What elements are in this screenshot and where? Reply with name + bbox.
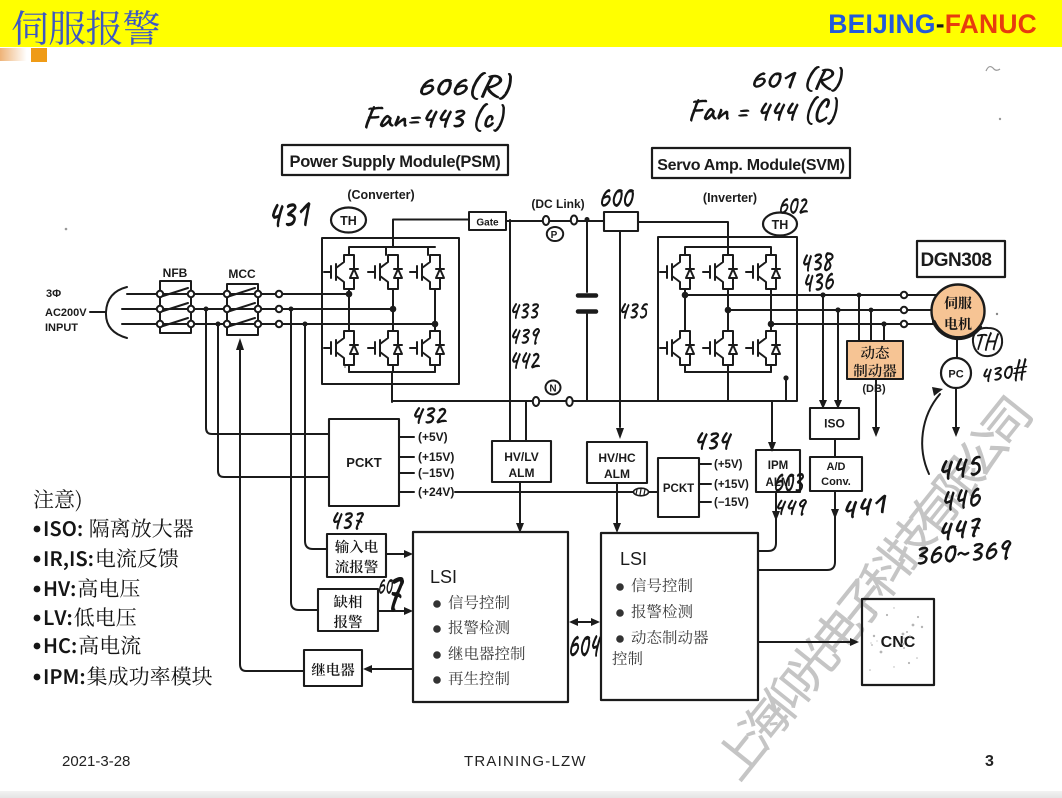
svg-text:(+5V): (+5V) — [418, 430, 448, 444]
svg-text:ALM: ALM — [509, 466, 535, 480]
svg-text:P: P — [551, 230, 558, 241]
svg-text:(+5V): (+5V) — [714, 459, 743, 471]
svg-text:(+15V): (+15V) — [418, 450, 454, 464]
svg-text:3Φ: 3Φ — [46, 288, 61, 300]
svg-text:ALM: ALM — [604, 467, 630, 481]
svg-text:(−15V): (−15V) — [418, 466, 454, 480]
svg-text:DGN308: DGN308 — [921, 250, 992, 271]
svg-text:LSI: LSI — [430, 567, 457, 587]
svg-text:(+24V): (+24V) — [418, 485, 454, 499]
svg-text:NFB: NFB — [163, 266, 188, 280]
svg-text:(+15V): (+15V) — [714, 479, 749, 491]
svg-text:N: N — [549, 384, 556, 395]
svg-text:(Inverter): (Inverter) — [703, 191, 757, 205]
svg-text:Conv.: Conv. — [821, 476, 851, 488]
svg-text:Power Supply Module(PSM): Power Supply Module(PSM) — [290, 153, 501, 171]
svg-text:(−15V): (−15V) — [714, 497, 749, 509]
svg-text:MCC: MCC — [228, 267, 256, 281]
svg-text:Servo Amp. Module(SVM): Servo Amp. Module(SVM) — [657, 157, 845, 174]
svg-text:TH: TH — [772, 218, 789, 232]
svg-text:(DB): (DB) — [862, 383, 886, 395]
svg-text:PC: PC — [948, 369, 963, 381]
svg-text:A/D: A/D — [827, 461, 846, 473]
svg-text:(DC Link): (DC Link) — [531, 197, 584, 211]
svg-text:TH: TH — [340, 214, 357, 228]
svg-text:(Converter): (Converter) — [347, 188, 414, 202]
svg-text:IPM: IPM — [768, 460, 788, 472]
svg-text:HV/HC: HV/HC — [598, 451, 636, 465]
svg-text:PCKT: PCKT — [663, 483, 694, 495]
svg-text:Gate: Gate — [476, 218, 499, 229]
svg-text:PCKT: PCKT — [346, 455, 381, 470]
svg-text:INPUT: INPUT — [45, 322, 78, 334]
svg-text:HV/LV: HV/LV — [504, 450, 538, 464]
svg-text:ISO: ISO — [824, 417, 845, 431]
svg-text:AC200V: AC200V — [45, 307, 87, 319]
svg-text:LSI: LSI — [620, 549, 647, 569]
